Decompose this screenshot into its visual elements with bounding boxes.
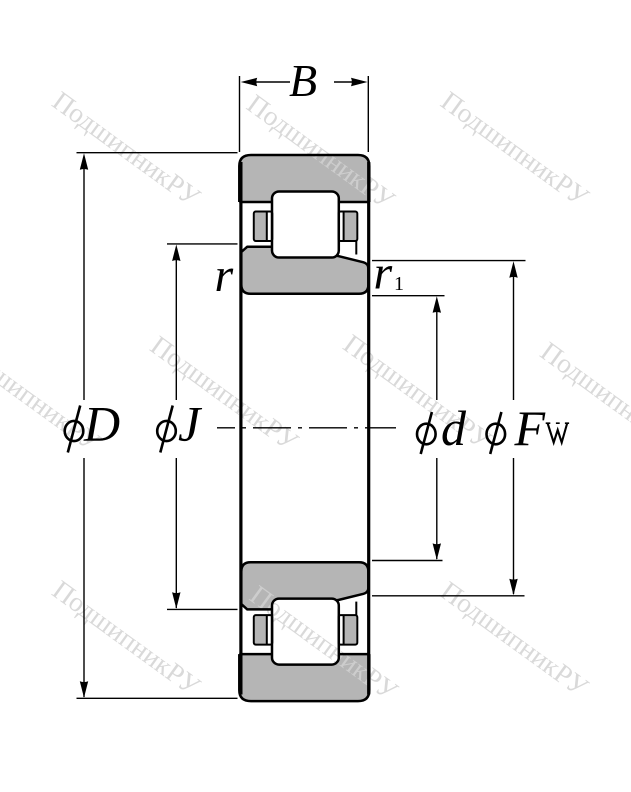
- svg-text:ПодшипникРУ: ПодшипникРУ: [435, 575, 595, 703]
- svg-text:F: F: [514, 400, 546, 456]
- svg-text:J: J: [178, 396, 203, 452]
- svg-text:D: D: [83, 396, 120, 452]
- svg-text:r: r: [374, 247, 393, 300]
- svg-text:B: B: [289, 55, 317, 106]
- svg-text:ПодшипникРУ: ПодшипникРУ: [435, 85, 595, 213]
- svg-text:ПодшипникРУ: ПодшипникРУ: [47, 574, 207, 702]
- svg-text:r: r: [215, 249, 234, 302]
- svg-text:ПодшипникРУ: ПодшипникРУ: [145, 329, 305, 457]
- svg-text:d: d: [441, 400, 467, 456]
- svg-text:1: 1: [394, 273, 404, 295]
- svg-text:ПодшипникРУ: ПодшипникРУ: [535, 335, 631, 463]
- svg-text:ПодшипникРУ: ПодшипникРУ: [47, 85, 207, 213]
